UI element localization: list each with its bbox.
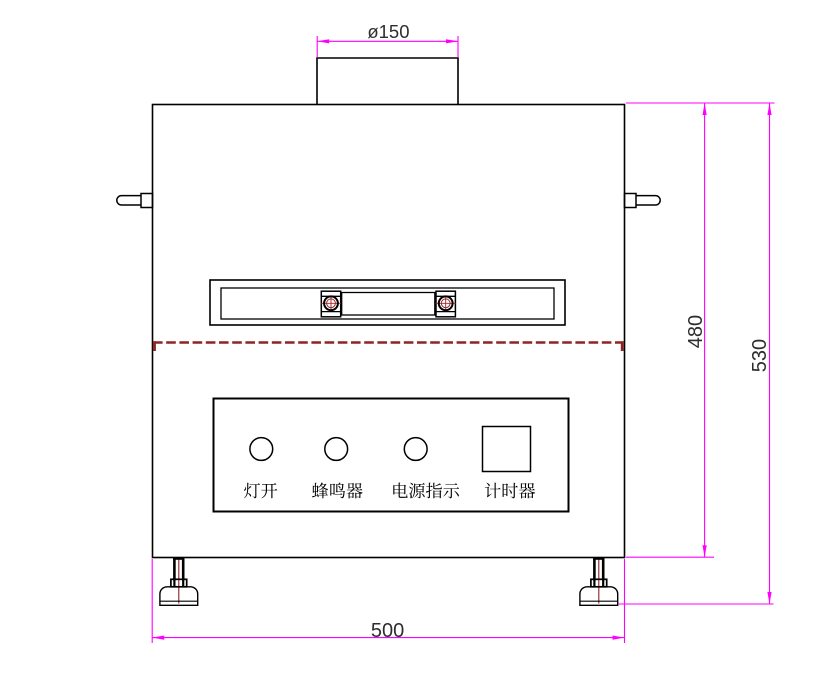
svg-text:ø150: ø150 bbox=[367, 21, 409, 42]
svg-text:530: 530 bbox=[749, 339, 771, 372]
svg-text:500: 500 bbox=[371, 620, 404, 642]
svg-text:480: 480 bbox=[685, 315, 707, 348]
